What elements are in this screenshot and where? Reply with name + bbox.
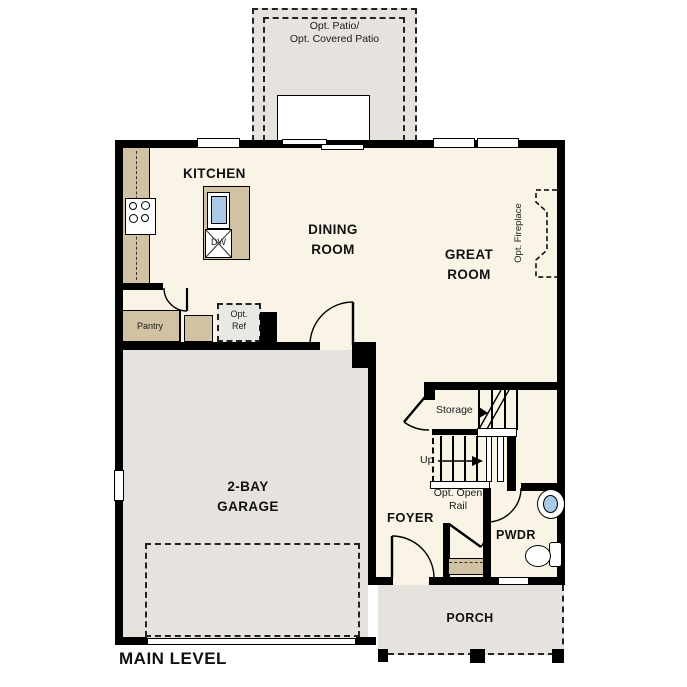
window-great-room-2 xyxy=(477,138,519,148)
patio-pad xyxy=(277,95,370,141)
opt-patio-label: Opt. Patio/ Opt. Covered Patio xyxy=(252,20,417,46)
porch-column xyxy=(470,649,485,663)
opt-fireplace-label: Opt. Fireplace xyxy=(513,193,527,273)
stair-tread-double xyxy=(497,436,504,482)
garage-door xyxy=(147,638,356,645)
wall-garage-bottom-left xyxy=(115,637,147,645)
burner-icon xyxy=(129,202,137,210)
up-label: Up xyxy=(420,454,433,467)
wall-garage-top xyxy=(115,342,320,350)
floor-plan: Opt. Patio/ Opt. Covered Patio DW Pantry… xyxy=(0,0,687,687)
dishwasher-label-text: DW xyxy=(210,237,227,247)
stair-tread xyxy=(516,390,518,430)
stair-tread xyxy=(440,436,442,482)
storage-label: Storage xyxy=(436,404,473,417)
window-great-room-1 xyxy=(433,138,475,148)
counter-segment xyxy=(184,315,213,342)
wall-pantry-top xyxy=(115,283,163,290)
porch-column xyxy=(552,649,564,663)
stair-post xyxy=(507,436,516,491)
stair-tread xyxy=(504,390,506,430)
great-room-label: GREAT ROOM xyxy=(419,245,519,284)
slider-door-panel-right xyxy=(321,144,364,150)
burner-icon xyxy=(141,214,149,222)
dishwasher-label: DW xyxy=(205,237,232,249)
stair-tread-double xyxy=(486,436,492,482)
powder-sink-basin xyxy=(543,495,558,513)
plan-title: MAIN LEVEL xyxy=(119,649,227,669)
stair-tread xyxy=(464,436,466,482)
stair-tread xyxy=(476,436,478,482)
opt-open-rail-label: Opt. Open Rail xyxy=(418,487,498,513)
stair-tread xyxy=(452,436,454,482)
kitchen-label: KITCHEN xyxy=(183,164,246,184)
wall-left xyxy=(115,140,123,645)
window-kitchen xyxy=(197,138,240,148)
burner-icon xyxy=(141,201,150,210)
porch-label: PORCH xyxy=(430,609,510,627)
wall-bottom-center xyxy=(429,577,498,585)
pantry-label: Pantry xyxy=(122,321,178,333)
powder-label: PWDR xyxy=(496,526,536,544)
opt-ref-label: Opt. Ref xyxy=(217,309,261,332)
toilet-bowl xyxy=(525,545,551,567)
wall-garage-right xyxy=(368,342,376,585)
wall-garage-bottom-right xyxy=(356,637,376,645)
closet-shelf xyxy=(448,558,484,575)
cooktop xyxy=(125,198,156,235)
porch-column xyxy=(378,649,388,662)
stair-tread xyxy=(491,390,493,430)
kitchen-sink xyxy=(211,196,227,224)
wall-right xyxy=(557,140,565,585)
window-powder xyxy=(498,577,529,585)
wall-bottom-foyer-left xyxy=(376,577,393,585)
garage-label: 2-BAY GARAGE xyxy=(198,477,298,516)
wall-stairs-top xyxy=(427,382,565,390)
window-garage xyxy=(114,470,124,501)
wall-powder-top xyxy=(521,483,565,491)
stair-mid-rail xyxy=(432,429,478,435)
stair-tread xyxy=(478,390,480,430)
dining-room-label: DINING ROOM xyxy=(283,220,383,259)
wall-bottom-powder xyxy=(528,577,565,585)
burner-icon xyxy=(129,214,138,223)
closet-shelf-dash xyxy=(449,562,483,564)
wall-stairs-top-end xyxy=(424,382,435,400)
wall-ref-stub xyxy=(260,312,277,342)
garage-door-swing-outline xyxy=(145,543,360,637)
